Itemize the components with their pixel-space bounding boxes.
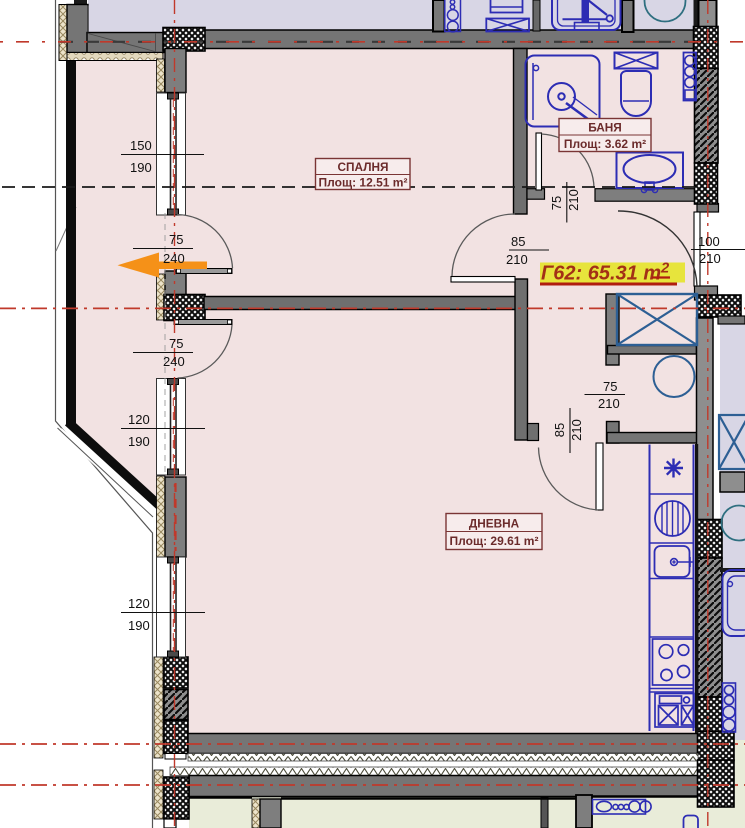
- svg-text:75: 75: [169, 232, 183, 247]
- svg-text:ДНЕВНА: ДНЕВНА: [469, 517, 520, 531]
- svg-text:75: 75: [603, 379, 617, 394]
- svg-text:100: 100: [698, 234, 720, 249]
- svg-text:СПАЛНЯ: СПАЛНЯ: [338, 160, 389, 174]
- svg-text:210: 210: [699, 251, 721, 266]
- svg-text:Г62: 65.31 m2: Г62: 65.31 m2: [541, 261, 669, 285]
- svg-text:75: 75: [549, 196, 564, 210]
- svg-text:240: 240: [163, 354, 185, 369]
- svg-text:240: 240: [163, 251, 185, 266]
- svg-text:190: 190: [128, 434, 150, 449]
- svg-text:210: 210: [569, 419, 584, 441]
- svg-text:75: 75: [169, 336, 183, 351]
- svg-text:85: 85: [511, 234, 525, 249]
- svg-text:210: 210: [506, 252, 528, 267]
- svg-text:120: 120: [128, 412, 150, 427]
- svg-text:Площ: 12.51 m²: Площ: 12.51 m²: [319, 176, 408, 190]
- svg-text:БАНЯ: БАНЯ: [588, 121, 622, 135]
- svg-text:85: 85: [552, 423, 567, 437]
- svg-text:190: 190: [130, 160, 152, 175]
- svg-text:210: 210: [566, 189, 581, 211]
- svg-text:150: 150: [130, 138, 152, 153]
- svg-text:Площ: 3.62 m²: Площ: 3.62 m²: [564, 137, 646, 151]
- svg-text:190: 190: [128, 618, 150, 633]
- svg-text:Площ: 29.61 m²: Площ: 29.61 m²: [450, 534, 539, 548]
- svg-text:210: 210: [598, 396, 620, 411]
- svg-text:120: 120: [128, 596, 150, 611]
